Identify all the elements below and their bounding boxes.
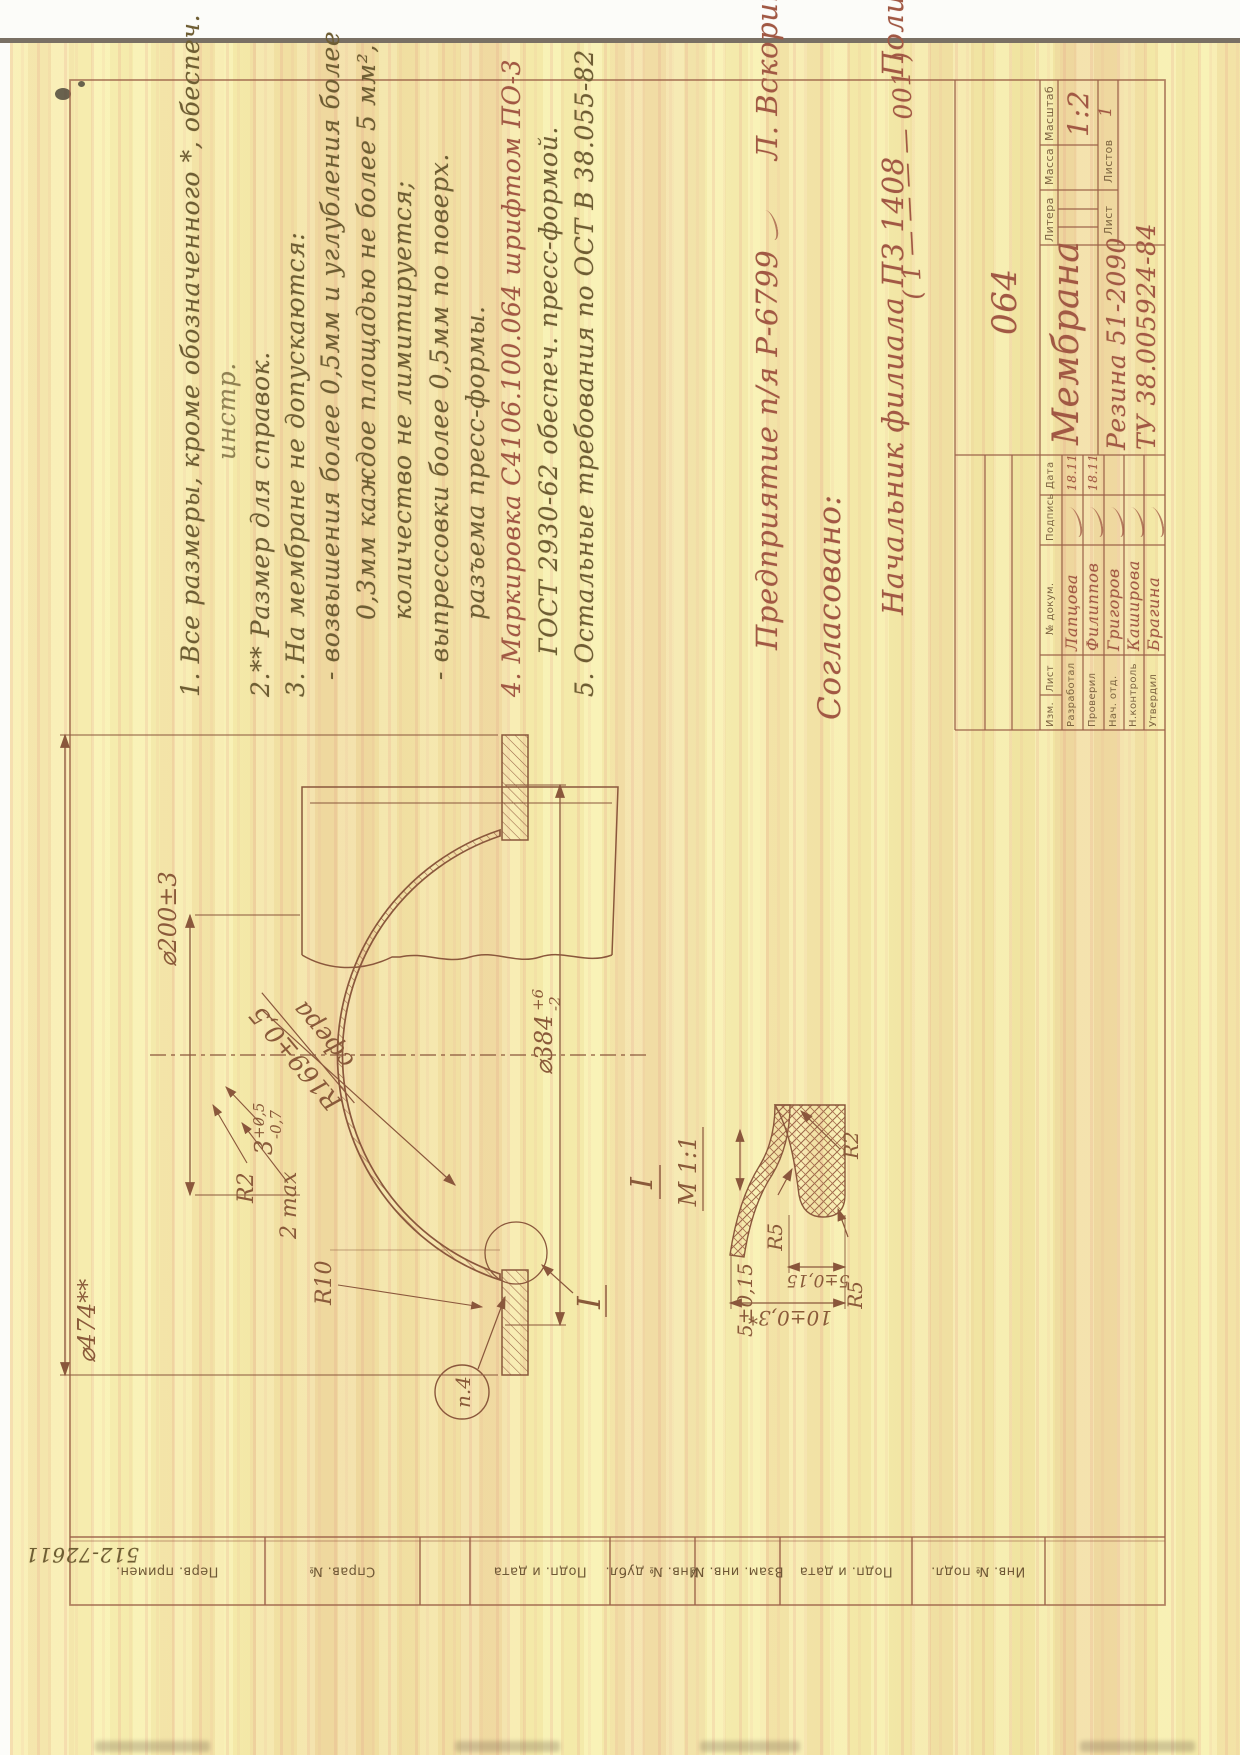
approval-line-1: Предприятие п/я Р-6799 Л. Вскорина: [750, 0, 784, 650]
note-line: - возвышения более 0,5мм и углубления бо…: [316, 31, 345, 680]
stamp-name: Григоров: [1104, 568, 1123, 651]
break-view-outline: [302, 787, 618, 968]
svg-text:3: 3: [250, 1140, 278, 1155]
margin-label-sprav-no: Справ. №: [309, 1564, 375, 1579]
note-line: разъема пресс-формы.: [461, 305, 490, 620]
note-line: 0,3мм каждое площадью не более 5 мм²,: [352, 44, 381, 620]
svg-text:-2: -2: [546, 996, 564, 1011]
stamp-role: Разработал: [1066, 662, 1077, 727]
dim-label-384: ⌀384 +6 -2: [529, 988, 564, 1075]
note4-callout-text: п.4: [451, 1376, 475, 1408]
svg-text:+0,5: +0,5: [250, 1103, 268, 1139]
stamp-role: Н.контроль: [1128, 663, 1139, 727]
note-line: - выпрессовки более 0,5мм по поверх.: [425, 153, 454, 680]
approval-header: Согласовано:: [812, 494, 848, 720]
stamp-role: Проверил: [1087, 673, 1098, 727]
approval-enterprise: Предприятие п/я Р-6799: [750, 250, 784, 650]
detail-scale: М 1:1: [674, 1136, 702, 1208]
listov-label: Листов: [1102, 140, 1115, 184]
massa-header: Масса: [1043, 148, 1056, 185]
note-line-marking: 4. Маркировка С4106.100.064 шрифтом ПО-3: [497, 59, 526, 697]
dim-label-r2: R2: [234, 1172, 259, 1204]
leader-note4: [478, 1297, 505, 1369]
note-line: 3. На мембране не допускаются:: [281, 232, 310, 697]
stamp-date: 18.11: [1065, 454, 1079, 491]
dim-label-2max: 2 max: [277, 1171, 302, 1240]
listov-value: 1: [1096, 106, 1116, 117]
svg-text:+6: +6: [529, 988, 547, 1011]
margin-label-inv-podl: Инв. № подл.: [931, 1564, 1026, 1579]
material-line-1: Резина 51-2090: [1102, 250, 1131, 450]
signature-squiggle: [759, 209, 780, 241]
stamp-role: Нач. отд.: [1108, 675, 1119, 727]
scale-value: 1:2: [1062, 90, 1095, 137]
masshtab-header: Масштаб: [1043, 86, 1056, 141]
note-line: инстр.: [212, 362, 241, 460]
detail-label: I: [625, 1176, 660, 1190]
stamp-header-podp: Подпись: [1045, 493, 1056, 541]
material-line-2: ТУ 38.005924-84: [1132, 250, 1161, 450]
detail-dim-5b: 5±0,15: [787, 1270, 850, 1290]
margin-label-vzam-inv: Взам. инв. №: [690, 1564, 783, 1579]
approval-signer-1: Л. Вскорина: [750, 0, 784, 160]
handwritten-corner-number: 512-72611: [25, 1543, 139, 1567]
dim-label-200: ⌀200±3: [154, 871, 182, 967]
note-line: количество не лимитируется;: [388, 180, 417, 620]
stamp-name: Лапцова: [1062, 574, 1081, 651]
dim-label-r169: R169±0,5 сфера: [238, 971, 380, 1123]
dim-label-3: 3 +0,5 -0,7: [250, 1103, 285, 1155]
svg-text:-0,7: -0,7: [267, 1110, 285, 1139]
leader-detail-I: [542, 1265, 573, 1293]
detail-ref-flag: I: [570, 1295, 608, 1310]
litera-header: Литера: [1043, 197, 1056, 242]
detail-dim-r2: R2: [839, 1131, 863, 1160]
stamp-header-izm: Изм.: [1045, 702, 1056, 727]
part-name: Мембрана: [1046, 250, 1087, 445]
svg-text:⌀384: ⌀384: [530, 1015, 558, 1075]
note-line: 5. Остальные требования по ОСТ В 38.055-…: [570, 49, 599, 697]
stamp-name: Каширова: [1124, 560, 1143, 651]
note-line: ГОСТ 2930-62 обеспеч. пресс-формой.: [534, 126, 563, 655]
margin-label-podp-data-1: Подп. и дата: [493, 1564, 586, 1579]
detail-dim-r5a: R5: [763, 1223, 787, 1252]
dim-label-r10: R10: [312, 1260, 337, 1306]
stamp-name: Филиппов: [1083, 563, 1102, 651]
designation-number: 064: [985, 268, 1025, 335]
stamp-header-doc: № докум.: [1045, 583, 1056, 636]
detail-flange-bead-section: [775, 1105, 845, 1217]
stamp-header-list: Лист: [1045, 665, 1056, 692]
list-label: Лист: [1102, 206, 1115, 235]
stamp-role: Утвердил: [1148, 674, 1159, 727]
note-line: 2.** Размер для справок.: [246, 351, 275, 697]
scanned-drawing-sheet: ⌀474** ⌀200±3 R169±0,5 сфера 3 +0,5 -0,7…: [0, 0, 1240, 1755]
main-view: ⌀474** ⌀200±3 R169±0,5 сфера 3 +0,5 -0,7…: [60, 735, 650, 1419]
detail-view: I М 1:1 5±0,15 R5 R2: [625, 1105, 867, 1337]
detail-dim-10: 10±0,3*: [748, 1306, 832, 1330]
margin-label-podp-data-2: Подп. и дата: [799, 1564, 892, 1579]
stamp-date: 18.11: [1086, 454, 1100, 491]
dim-label-474: ⌀474**: [73, 1279, 101, 1363]
margin-label-inv-dubl: Инв. № дубл.: [605, 1564, 699, 1579]
note-line: 1. Все размеры, кроме обозначенного *, о…: [176, 14, 205, 697]
stamp-header-data: Дата: [1045, 462, 1056, 490]
stamp-name: Брагина: [1144, 577, 1163, 651]
leader-r2: [213, 1105, 247, 1163]
left-flange-section: [502, 1270, 528, 1375]
landscape-sheet: ⌀474** ⌀200±3 R169±0,5 сфера 3 +0,5 -0,7…: [0, 0, 1240, 1755]
leader-r10: [338, 1285, 482, 1307]
